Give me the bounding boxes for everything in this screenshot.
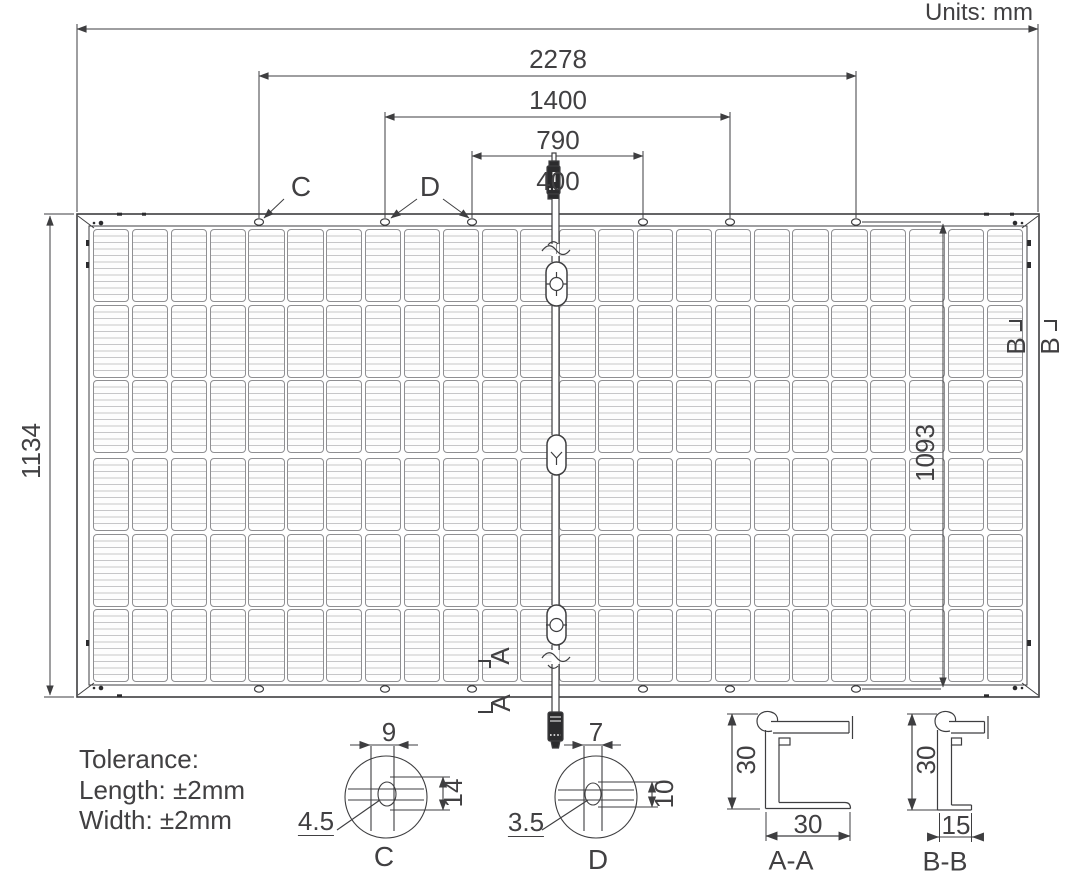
solar-cell bbox=[598, 229, 634, 302]
solar-cell bbox=[482, 458, 518, 531]
detail-d-hole-size: 3.5 bbox=[508, 809, 544, 837]
solar-cell bbox=[210, 458, 246, 531]
section-bb-title: B-B bbox=[922, 849, 967, 876]
solar-cell bbox=[987, 458, 1023, 531]
solar-cell bbox=[171, 229, 207, 302]
hole-marker-c: C bbox=[291, 173, 311, 201]
solar-cell bbox=[171, 380, 207, 453]
tolerance-width: Width: ±2mm bbox=[79, 807, 232, 833]
detail-c-slot-width: 9 bbox=[382, 719, 396, 745]
solar-cell bbox=[948, 458, 984, 531]
solar-cell bbox=[248, 458, 284, 531]
solar-cell bbox=[443, 305, 479, 378]
solar-cell bbox=[909, 534, 945, 607]
section-b-label-inner: B bbox=[1003, 337, 1029, 354]
solar-cell bbox=[715, 380, 751, 453]
solar-cell bbox=[404, 380, 440, 453]
solar-cell bbox=[870, 380, 906, 453]
solar-cell bbox=[93, 229, 129, 302]
solar-cell bbox=[792, 534, 828, 607]
solar-cell bbox=[598, 609, 634, 682]
solar-cell bbox=[210, 305, 246, 378]
solar-cell bbox=[93, 305, 129, 378]
detail-d-title: D bbox=[588, 846, 608, 874]
solar-cell bbox=[559, 609, 595, 682]
solar-cell bbox=[443, 458, 479, 531]
solar-cell bbox=[482, 609, 518, 682]
solar-cell bbox=[870, 458, 906, 531]
section-aa-height: 30 bbox=[733, 746, 759, 775]
solar-cell bbox=[248, 380, 284, 453]
solar-cell bbox=[132, 305, 168, 378]
solar-cell bbox=[870, 305, 906, 378]
solar-cell bbox=[559, 229, 595, 302]
solar-cell bbox=[831, 609, 867, 682]
solar-cell bbox=[987, 534, 1023, 607]
solar-cell bbox=[210, 380, 246, 453]
solar-cell bbox=[987, 380, 1023, 453]
solar-cell bbox=[326, 609, 362, 682]
detail-c-hole-size: 4.5 bbox=[298, 808, 334, 836]
solar-cell bbox=[715, 229, 751, 302]
solar-cell bbox=[715, 609, 751, 682]
mounting-holes-bottom bbox=[255, 686, 861, 692]
solar-cell bbox=[870, 609, 906, 682]
dim-1134: 1134 bbox=[18, 423, 44, 479]
solar-cell bbox=[948, 229, 984, 302]
section-bb-width: 15 bbox=[942, 812, 971, 838]
solar-cell bbox=[831, 305, 867, 378]
solar-cell bbox=[948, 534, 984, 607]
cell-grid-bottom bbox=[93, 458, 1023, 682]
solar-cell bbox=[365, 380, 401, 453]
solar-cell bbox=[404, 229, 440, 302]
solar-cell bbox=[987, 229, 1023, 302]
solar-cell bbox=[559, 458, 595, 531]
solar-cell bbox=[559, 305, 595, 378]
units-label: Units: mm bbox=[905, 1, 1033, 25]
solar-cell bbox=[326, 458, 362, 531]
solar-cell bbox=[948, 609, 984, 682]
solar-cell bbox=[676, 380, 712, 453]
section-aa-title: A-A bbox=[768, 848, 813, 875]
solar-cell bbox=[443, 534, 479, 607]
solar-cell bbox=[326, 305, 362, 378]
solar-cell bbox=[210, 609, 246, 682]
solar-cell bbox=[365, 458, 401, 531]
solar-cell bbox=[715, 458, 751, 531]
cell-grid-top bbox=[93, 229, 1023, 453]
solar-cell bbox=[132, 380, 168, 453]
solar-cell bbox=[715, 305, 751, 378]
detail-c-slot-height: 14 bbox=[440, 779, 466, 808]
solar-cell bbox=[637, 380, 673, 453]
solar-cell bbox=[443, 380, 479, 453]
solar-cell bbox=[715, 534, 751, 607]
solar-cell bbox=[210, 229, 246, 302]
solar-cell bbox=[870, 534, 906, 607]
solar-cell bbox=[676, 305, 712, 378]
solar-cell bbox=[287, 609, 323, 682]
solar-cell bbox=[792, 609, 828, 682]
solar-cell bbox=[443, 229, 479, 302]
solar-cell bbox=[870, 229, 906, 302]
section-a-label-inner: A bbox=[487, 647, 513, 664]
solar-cell bbox=[365, 229, 401, 302]
solar-cell bbox=[210, 534, 246, 607]
solar-cell bbox=[637, 534, 673, 607]
connector-bottom bbox=[548, 712, 563, 748]
section-bb-height: 30 bbox=[913, 746, 939, 775]
solar-cell bbox=[326, 229, 362, 302]
solar-cell bbox=[792, 305, 828, 378]
dim-1093: 1093 bbox=[912, 424, 938, 482]
solar-cell bbox=[948, 380, 984, 453]
section-b-mark-outer bbox=[1044, 321, 1056, 331]
solar-cell bbox=[831, 380, 867, 453]
dim-1400: 1400 bbox=[529, 87, 587, 113]
solar-cell bbox=[676, 458, 712, 531]
solar-cell bbox=[637, 305, 673, 378]
solar-cell bbox=[287, 305, 323, 378]
solar-cell bbox=[909, 229, 945, 302]
solar-cell bbox=[482, 380, 518, 453]
solar-cell bbox=[520, 305, 556, 378]
solar-cell bbox=[754, 534, 790, 607]
detail-d-slot-width: 7 bbox=[589, 719, 603, 745]
solar-cell bbox=[93, 458, 129, 531]
solar-cell bbox=[132, 534, 168, 607]
solar-cell bbox=[598, 458, 634, 531]
solar-cell bbox=[598, 534, 634, 607]
detail-d-slot-height: 10 bbox=[651, 780, 677, 809]
solar-cell bbox=[831, 458, 867, 531]
solar-cell bbox=[520, 534, 556, 607]
solar-cell bbox=[482, 534, 518, 607]
tolerance-length: Length: ±2mm bbox=[79, 777, 245, 803]
solar-cell bbox=[909, 609, 945, 682]
solar-cell bbox=[598, 380, 634, 453]
section-aa-width: 30 bbox=[794, 811, 823, 837]
solar-cell bbox=[248, 609, 284, 682]
solar-cell bbox=[171, 305, 207, 378]
engineering-drawing: Units: mm 2278 1400 790 400 C D 1134 109… bbox=[0, 0, 1088, 878]
solar-cell bbox=[404, 305, 440, 378]
solar-cell bbox=[637, 458, 673, 531]
detail-c-title: C bbox=[374, 843, 394, 871]
solar-cell bbox=[482, 229, 518, 302]
solar-cell bbox=[676, 534, 712, 607]
solar-cell bbox=[365, 305, 401, 378]
mounting-holes-top bbox=[255, 219, 861, 225]
solar-cell bbox=[132, 609, 168, 682]
solar-cell bbox=[831, 229, 867, 302]
solar-cell bbox=[132, 458, 168, 531]
solar-cell bbox=[326, 534, 362, 607]
solar-cell bbox=[248, 534, 284, 607]
solar-cell bbox=[754, 609, 790, 682]
detail-c-hole bbox=[378, 782, 396, 806]
solar-cell bbox=[287, 458, 323, 531]
solar-cell bbox=[404, 534, 440, 607]
solar-cell bbox=[637, 609, 673, 682]
solar-cell bbox=[520, 380, 556, 453]
solar-cell bbox=[93, 609, 129, 682]
section-aa-view bbox=[727, 711, 853, 841]
detail-c-view bbox=[337, 745, 450, 838]
solar-cell bbox=[637, 229, 673, 302]
solar-cell bbox=[365, 534, 401, 607]
solar-cell bbox=[287, 380, 323, 453]
solar-cell bbox=[443, 609, 479, 682]
solar-cell bbox=[365, 609, 401, 682]
detail-d-view bbox=[542, 745, 658, 838]
solar-cell bbox=[404, 458, 440, 531]
solar-cell bbox=[559, 380, 595, 453]
solar-cell bbox=[93, 380, 129, 453]
detail-d-hole bbox=[585, 783, 601, 805]
solar-cell bbox=[948, 305, 984, 378]
dim-2278: 2278 bbox=[529, 46, 587, 72]
solar-cell bbox=[598, 305, 634, 378]
solar-cell bbox=[171, 458, 207, 531]
solar-cell bbox=[754, 458, 790, 531]
dim-400: 400 bbox=[536, 168, 579, 194]
solar-cell bbox=[987, 609, 1023, 682]
solar-cell bbox=[754, 305, 790, 378]
solar-cell bbox=[326, 380, 362, 453]
section-b-label-outer: B bbox=[1037, 337, 1063, 354]
solar-cell bbox=[132, 229, 168, 302]
solar-cell bbox=[831, 534, 867, 607]
solar-cell bbox=[909, 305, 945, 378]
solar-cell bbox=[248, 229, 284, 302]
solar-cell bbox=[520, 229, 556, 302]
solar-cell bbox=[287, 229, 323, 302]
solar-cell bbox=[520, 458, 556, 531]
solar-cell bbox=[287, 534, 323, 607]
solar-cell bbox=[404, 609, 440, 682]
solar-cell bbox=[248, 305, 284, 378]
solar-cell bbox=[520, 609, 556, 682]
solar-cell bbox=[171, 609, 207, 682]
solar-cell bbox=[754, 380, 790, 453]
solar-cell bbox=[171, 534, 207, 607]
solar-cell bbox=[792, 380, 828, 453]
dim-790: 790 bbox=[536, 127, 579, 153]
solar-cell bbox=[482, 305, 518, 378]
hole-marker-d: D bbox=[420, 173, 440, 201]
solar-cell bbox=[792, 458, 828, 531]
section-a-label-outer: A bbox=[488, 694, 514, 711]
solar-cell bbox=[676, 609, 712, 682]
solar-cell bbox=[93, 534, 129, 607]
solar-cell bbox=[792, 229, 828, 302]
tolerance-title: Tolerance: bbox=[79, 746, 199, 772]
solar-cell bbox=[676, 229, 712, 302]
solar-cell bbox=[754, 229, 790, 302]
solar-cell bbox=[559, 534, 595, 607]
